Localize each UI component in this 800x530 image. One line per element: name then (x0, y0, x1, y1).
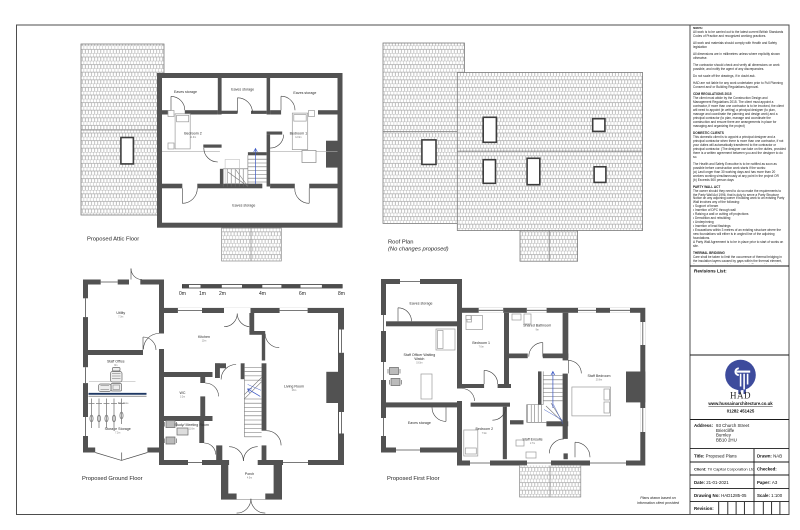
svg-text:Revisions List:: Revisions List: (694, 269, 727, 274)
svg-text:Eaves storage: Eaves storage (408, 421, 431, 425)
svg-text:Scale: 1:100: Scale: 1:100 (757, 493, 783, 498)
svg-text:Title: Proposed Plans: Title: Proposed Plans (694, 454, 737, 459)
svg-text:1m: 1m (199, 291, 206, 297)
svg-text:Proposed Ground Floor: Proposed Ground Floor (82, 476, 143, 482)
svg-text:Proposed First Floor: Proposed First Floor (387, 476, 440, 482)
svg-text:6m: 6m (299, 291, 306, 297)
svg-text:Staff Office: Staff Office (107, 359, 125, 363)
svg-text:information client provided: information client provided (637, 501, 680, 505)
svg-text:7.6m: 7.6m (479, 347, 484, 349)
svg-text:Checked:: Checked: (757, 467, 777, 472)
svg-text:7.9m: 7.9m (482, 433, 487, 435)
svg-text:Eaves storage: Eaves storage (174, 90, 197, 94)
svg-text:11.9m: 11.9m (190, 137, 196, 139)
svg-text:Drawn: NAB: Drawn: NAB (757, 454, 782, 459)
svg-text:Revision:: Revision: (694, 506, 714, 511)
svg-text:7.3m: 7.3m (118, 317, 123, 319)
svg-text:Bike Store: Bike Store (118, 402, 129, 405)
svg-text:01282 451425: 01282 451425 (727, 409, 755, 414)
svg-text:Bedroom 2: Bedroom 2 (184, 132, 202, 136)
svg-text:Address:: Address: (694, 423, 714, 428)
svg-text:(No changes proposed): (No changes proposed) (388, 247, 449, 253)
svg-text:WC: WC (180, 391, 186, 395)
svg-text:12.9m: 12.9m (295, 137, 301, 139)
svg-text:Eaves storage: Eaves storage (293, 91, 316, 95)
svg-text:8m: 8m (114, 365, 117, 367)
svg-text:Porch: Porch (245, 472, 254, 476)
svg-text:13m: 13m (202, 341, 207, 343)
svg-text:BB10 2HU: BB10 2HU (716, 437, 737, 442)
svg-text:Client: Tri Capital Corporatio: Client: Tri Capital Corporation Ltd (694, 467, 754, 472)
svg-text:Bedroom 2: Bedroom 2 (476, 427, 494, 431)
svg-text:7.2m: 7.2m (115, 433, 120, 435)
svg-text:0m: 0m (179, 291, 186, 297)
svg-text:Storage Storage: Storage Storage (105, 427, 131, 431)
svg-text:Staff Bedroom: Staff Bedroom (588, 374, 611, 378)
svg-text:Roof Plan: Roof Plan (388, 240, 413, 246)
svg-text:HAD: HAD (730, 391, 751, 401)
svg-text:Utility: Utility (116, 311, 125, 315)
svg-text:23m: 23m (292, 390, 297, 392)
svg-text:Bedroom 1: Bedroom 1 (290, 132, 308, 136)
svg-text:Date: 21-01-2021: Date: 21-01-2021 (694, 480, 729, 485)
svg-text:www.hussainarchitecture.co.uk: www.hussainarchitecture.co.uk (707, 401, 773, 406)
svg-text:Study/ Meeting Room: Study/ Meeting Room (174, 423, 209, 427)
svg-text:Kitchen: Kitchen (198, 335, 210, 339)
svg-text:Bedroom 1: Bedroom 1 (472, 341, 490, 345)
svg-text:Plans drawn based on: Plans drawn based on (640, 496, 676, 500)
svg-text:8m: 8m (338, 291, 345, 297)
svg-text:Drawing No: HAD1285-05: Drawing No: HAD1285-05 (694, 493, 747, 498)
svg-text:Eaves storage: Eaves storage (232, 204, 255, 208)
svg-text:19.5m: 19.5m (416, 363, 422, 365)
svg-text:2.7m: 2.7m (530, 443, 535, 445)
svg-text:Proposed Attic Floor: Proposed Attic Floor (87, 237, 139, 243)
svg-text:3.2m: 3.2m (180, 397, 185, 399)
svg-text:Watch: Watch (414, 357, 424, 361)
svg-text:Living Room: Living Room (284, 384, 304, 388)
svg-text:9m: 9m (536, 329, 539, 331)
svg-text:20.6m: 20.6m (596, 380, 602, 382)
svg-text:4.5m: 4.5m (247, 478, 252, 480)
svg-text:Eaves storage: Eaves storage (231, 88, 254, 92)
svg-text:Staff Ensuite: Staff Ensuite (522, 438, 542, 442)
svg-text:Shared Bathroom: Shared Bathroom (523, 324, 551, 328)
svg-text:4m: 4m (259, 291, 266, 297)
svg-text:Eaves storage: Eaves storage (410, 301, 433, 305)
svg-text:Paper: A3: Paper: A3 (757, 480, 778, 485)
svg-text:11.6m: 11.6m (188, 429, 194, 431)
svg-text:2m: 2m (219, 291, 226, 297)
